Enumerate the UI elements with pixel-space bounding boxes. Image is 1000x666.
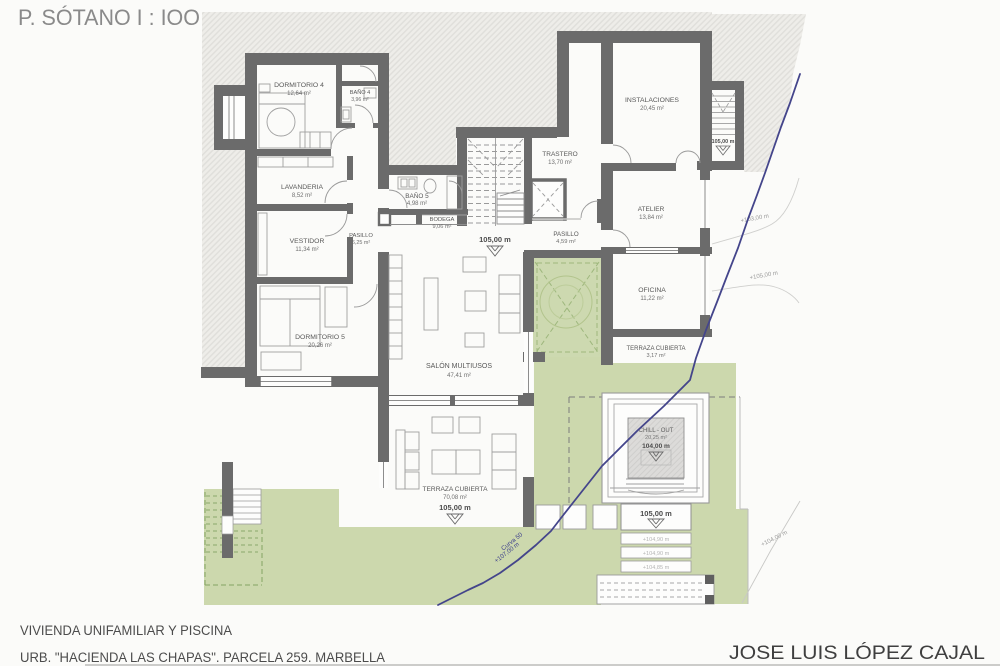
svg-text:9,06 m²: 9,06 m² [433, 224, 452, 230]
svg-text:INSTALACIONES: INSTALACIONES [625, 97, 679, 104]
svg-text:TERRAZA CUBIERTA: TERRAZA CUBIERTA [626, 346, 685, 352]
svg-text:CHILL - OUT: CHILL - OUT [639, 428, 674, 434]
svg-text:11,22 m²: 11,22 m² [640, 296, 663, 302]
svg-text:TRASTERO: TRASTERO [542, 151, 577, 158]
svg-text:JOSE LUIS LÓPEZ CAJAL: JOSE LUIS LÓPEZ CAJAL [729, 641, 985, 664]
svg-text:DORMITORIO 5: DORMITORIO 5 [295, 334, 345, 341]
svg-text:+104,85 m: +104,85 m [643, 565, 670, 571]
svg-text:13,70 m²: 13,70 m² [548, 160, 572, 166]
svg-text:LAVANDERIA: LAVANDERIA [281, 184, 324, 191]
svg-text:PASILLO: PASILLO [553, 231, 579, 238]
svg-text:DORMITORIO 4: DORMITORIO 4 [274, 82, 324, 89]
svg-text:70,08 m²: 70,08 m² [443, 495, 467, 501]
svg-text:105,00 m: 105,00 m [712, 139, 735, 145]
svg-text:105,00 m: 105,00 m [640, 509, 672, 518]
svg-text:ATELIER: ATELIER [638, 206, 665, 213]
svg-text:BAÑO 4: BAÑO 4 [350, 89, 371, 96]
svg-text:BAÑO 5: BAÑO 5 [405, 191, 429, 200]
svg-text:VESTIDOR: VESTIDOR [290, 238, 325, 245]
svg-text:TERRAZA CUBIERTA: TERRAZA CUBIERTA [423, 486, 489, 493]
svg-text:12,64 m²: 12,64 m² [287, 91, 311, 97]
svg-text:104,00 m: 104,00 m [642, 443, 670, 450]
svg-text:PASILLO: PASILLO [349, 233, 373, 239]
svg-text:13,84 m²: 13,84 m² [639, 215, 663, 221]
svg-text:+104,90 m: +104,90 m [643, 537, 670, 543]
svg-text:20,25 m²: 20,25 m² [645, 435, 667, 441]
svg-text:OFICINA: OFICINA [638, 287, 666, 294]
svg-text:4,98 m²: 4,98 m² [407, 201, 427, 207]
svg-text:3,96 m²: 3,96 m² [351, 97, 369, 103]
svg-text:105,00 m: 105,00 m [479, 235, 511, 244]
svg-text:47,41 m²: 47,41 m² [447, 373, 471, 379]
svg-text:11,34 m²: 11,34 m² [295, 247, 318, 253]
svg-text:20,45 m²: 20,45 m² [640, 106, 664, 112]
svg-text:+104,90 m: +104,90 m [643, 551, 670, 557]
svg-text:BODEGA: BODEGA [430, 217, 455, 223]
svg-text:4,59 m²: 4,59 m² [556, 239, 576, 245]
svg-text:20,26 m²: 20,26 m² [308, 343, 332, 349]
svg-text:SALÓN MULTIUSOS: SALÓN MULTIUSOS [426, 361, 492, 370]
svg-text:P. SÓTANO I : IOO: P. SÓTANO I : IOO [18, 5, 200, 30]
svg-text:105,00 m: 105,00 m [439, 503, 471, 512]
svg-text:URB. "HACIENDA LAS CHAPAS". PA: URB. "HACIENDA LAS CHAPAS". PARCELA 259.… [20, 650, 385, 665]
svg-text:6,25 m²: 6,25 m² [352, 240, 370, 246]
svg-text:3,17 m²: 3,17 m² [647, 353, 666, 359]
svg-text:VIVIENDA UNIFAMILIAR Y PISCINA: VIVIENDA UNIFAMILIAR Y PISCINA [20, 623, 232, 638]
svg-text:8,52 m²: 8,52 m² [292, 193, 312, 199]
